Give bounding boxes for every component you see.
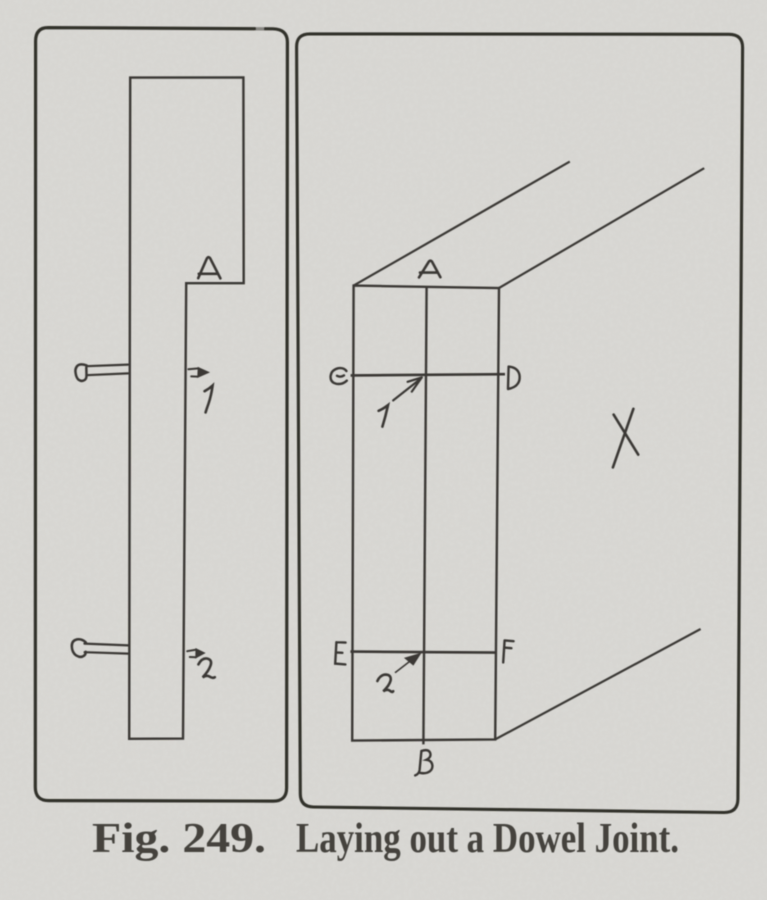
svg-text:Fig. 249.: Fig. 249. <box>92 816 266 862</box>
svg-text:Laying out a Dowel Joint.: Laying out a Dowel Joint. <box>296 816 679 862</box>
